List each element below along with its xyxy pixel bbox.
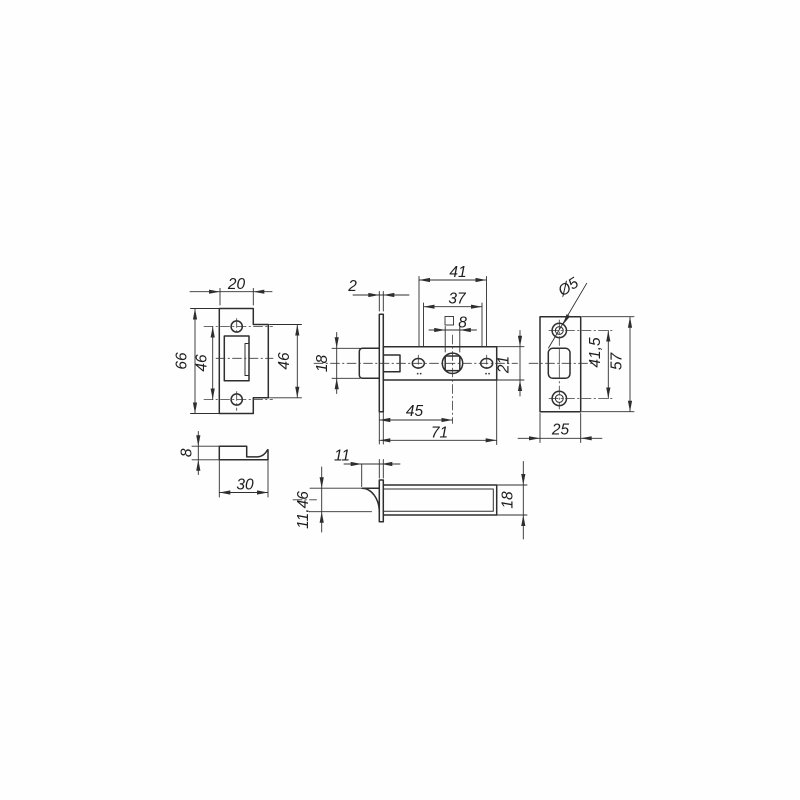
dim-case-width: 18 — [500, 491, 517, 509]
dim-bolt-width: 11,46 — [295, 491, 312, 529]
dim-hole-spacing-outer: 41 — [449, 264, 466, 281]
dim-strike-depth: 30 — [236, 477, 254, 494]
faceplate-plate — [540, 317, 581, 412]
strike-plate-profile — [219, 446, 268, 460]
faceplate-front-view: Ø5 41,5 57 25 — [518, 274, 634, 442]
dim-bolt-projection: 11 — [334, 448, 350, 465]
dim-faceplate-height: 57 — [609, 352, 626, 371]
dim-bolt-height: 18 — [314, 355, 331, 373]
dim-hole-spacing-inner: 37 — [448, 291, 467, 308]
strike-plate-front-view: 20 66 46 46 — [174, 276, 302, 414]
dim-case-height: 21 — [496, 356, 513, 374]
dim-backset: 45 — [406, 403, 424, 420]
strike-plate-side-view: 8 30 — [179, 432, 269, 498]
dim-faceplate-thickness: 2 — [347, 278, 357, 295]
square-symbol — [445, 317, 454, 326]
latch-technical-drawing: 20 66 46 46 2 41 37 — [0, 0, 800, 800]
strike-plate-outline — [219, 309, 268, 414]
latch-top-view: 11 11,46 18 — [293, 448, 527, 540]
dim-strike-offset: 8 — [179, 448, 196, 457]
dim-faceplate-width: 25 — [551, 422, 570, 439]
dim-strike-height: 66 — [174, 352, 191, 370]
dim-strike-tab-height: 46 — [276, 352, 293, 370]
dim-screw-hole-diameter: Ø5 — [554, 274, 582, 300]
dim-overall-length: 71 — [431, 425, 448, 442]
latch-bolt-top-view — [362, 488, 379, 512]
latch-body-side-view: 2 41 37 8 18 21 45 71 — [314, 264, 524, 445]
latch-case-inner-lines — [383, 489, 493, 511]
dim-strike-hole-spacing: 46 — [194, 354, 211, 372]
dim-strike-width: 20 — [227, 276, 246, 293]
technical-drawing-sheet: 20 66 46 46 2 41 37 — [0, 0, 800, 800]
dim-screw-hole-spacing: 41,5 — [587, 337, 604, 368]
